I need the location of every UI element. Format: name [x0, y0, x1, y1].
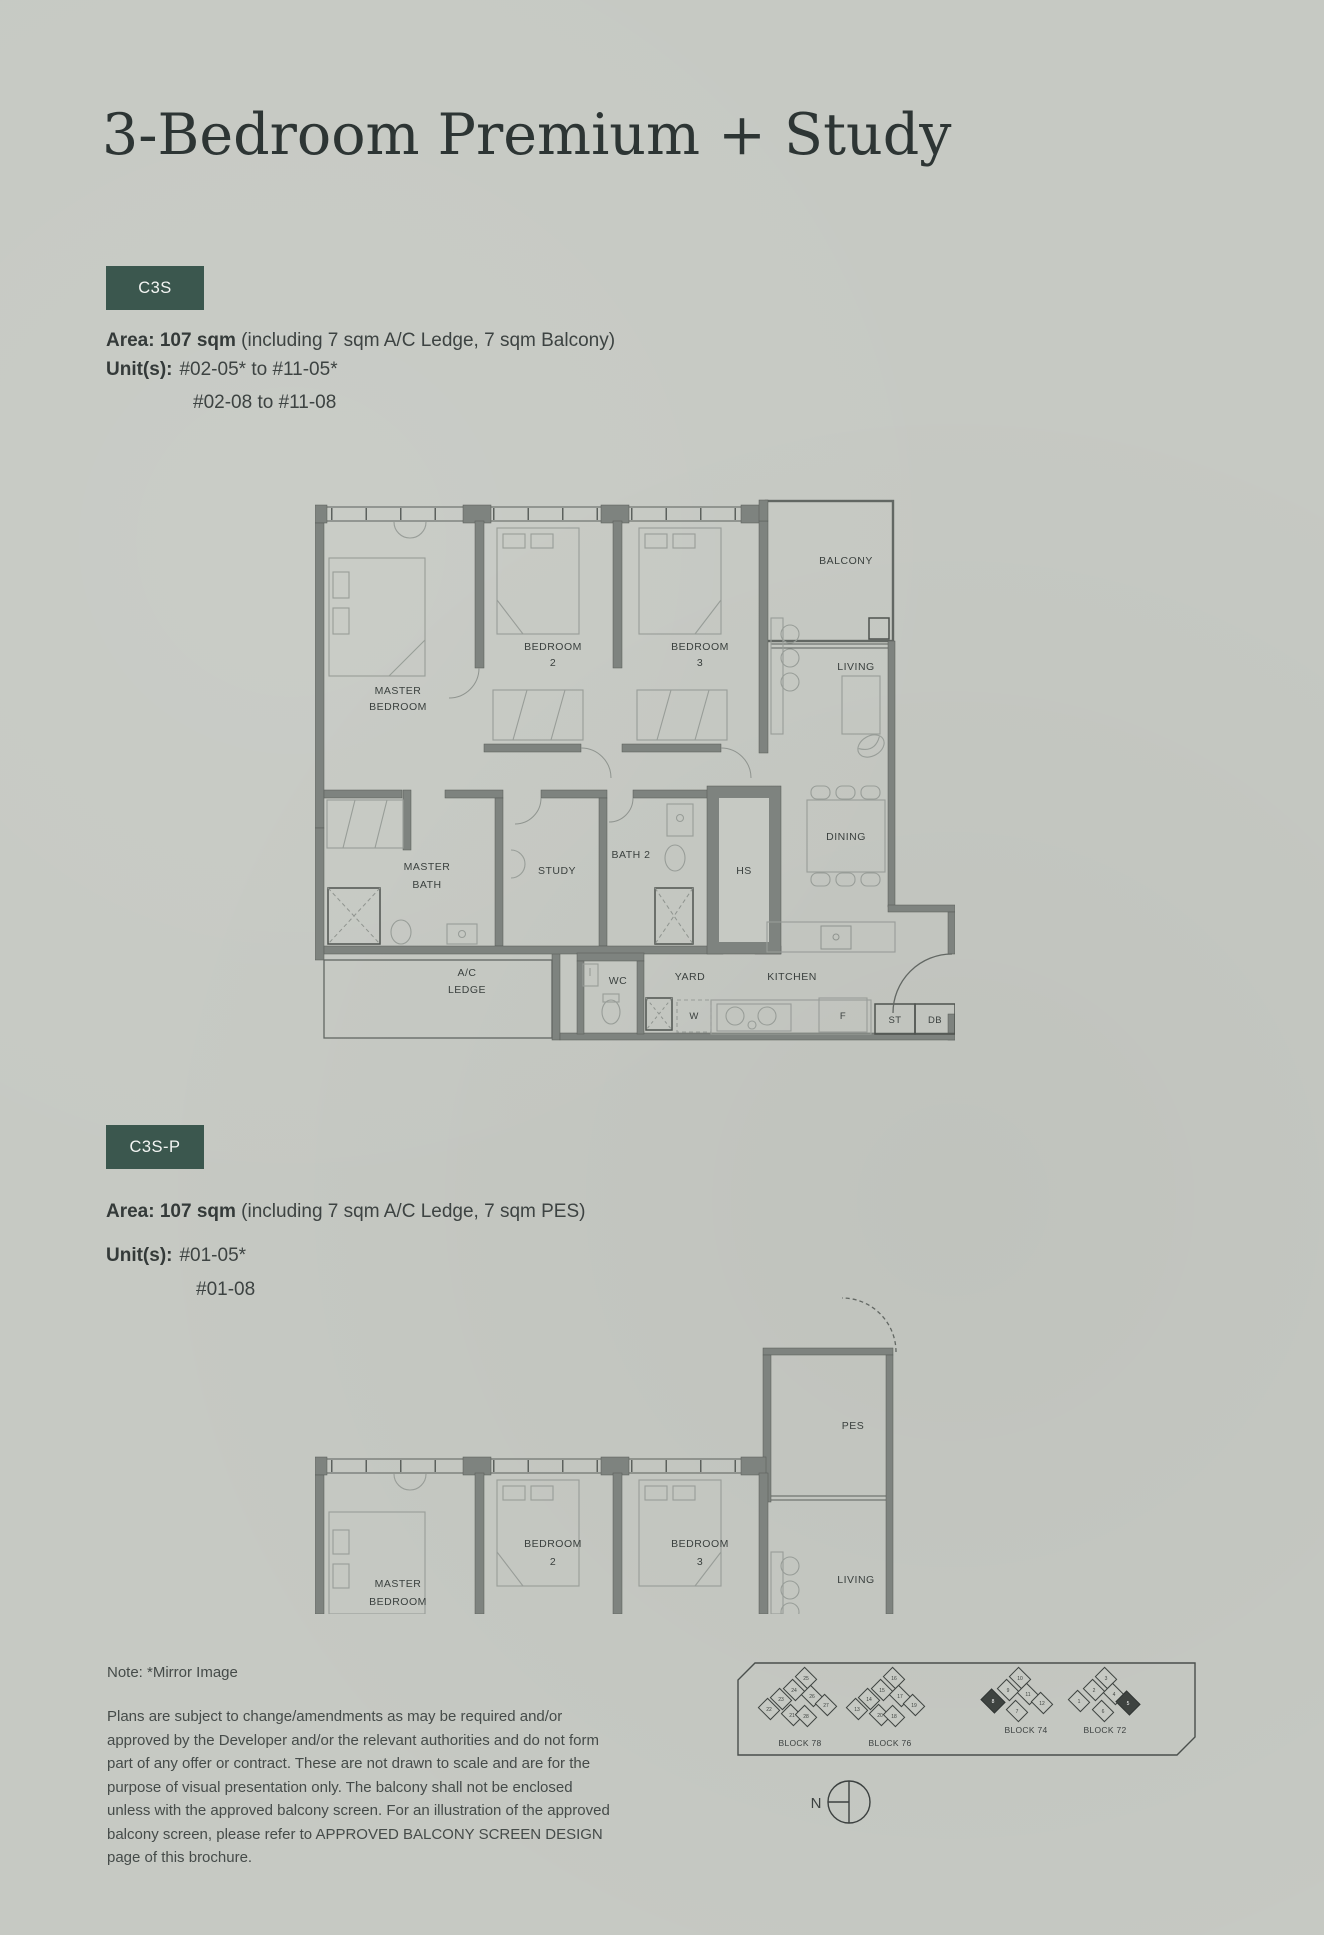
- site-block-76: 16 15 14 13 20 17 19 18: [846, 1667, 924, 1726]
- room-label-master-bedroom: MASTER: [375, 685, 422, 697]
- site-unit-number: 27: [823, 1703, 829, 1709]
- area-detail: (including 7 sqm A/C Ledge, 7 sqm Balcon…: [236, 330, 615, 351]
- site-unit-number: 14: [866, 1697, 872, 1703]
- site-block-72: 3 2 1 6 4 5: [1068, 1667, 1140, 1721]
- door-arc: [515, 798, 541, 824]
- vanity: [667, 804, 693, 836]
- site-unit-number: 22: [766, 1707, 772, 1713]
- site-unit-number: 18: [891, 1714, 897, 1720]
- site-unit-number: 5: [1127, 1701, 1130, 1707]
- units-range-1: #02-05* to #11-05*: [179, 359, 337, 380]
- site-unit-number: 16: [891, 1676, 897, 1682]
- site-unit-number: 3: [1105, 1676, 1108, 1682]
- svg-text:LEDGE: LEDGE: [448, 984, 486, 996]
- site-unit-number: 12: [1039, 1701, 1045, 1707]
- room-label-yard: YARD: [675, 971, 705, 983]
- chair: [811, 786, 830, 799]
- site-unit-number: 25: [803, 1676, 809, 1682]
- wardrobe: [327, 800, 403, 848]
- site-unit-number: 10: [1017, 1676, 1023, 1682]
- kitchen-sink: [821, 926, 851, 949]
- site-unit-number: 21: [789, 1713, 795, 1719]
- site-unit-number: 7: [1016, 1709, 1019, 1715]
- wall: [315, 523, 324, 828]
- site-unit-number: 17: [897, 1694, 903, 1700]
- units-label: Unit(s):: [106, 359, 172, 380]
- room-label-pes: PES: [842, 1420, 865, 1432]
- site-unit-number: 9: [1007, 1688, 1010, 1694]
- bath-sink: [391, 920, 411, 944]
- brochure-page: 3-Bedroom Premium + Study C3S Area: 107 …: [0, 0, 1324, 1935]
- units-label: Unit(s):: [106, 1245, 172, 1266]
- label-st: ST: [889, 1015, 902, 1026]
- site-block-label: BLOCK 72: [1083, 1725, 1126, 1735]
- page-title: 3-Bedroom Premium + Study: [102, 102, 951, 168]
- site-unit-number: 2: [1093, 1688, 1096, 1694]
- site-unit-number: 19: [911, 1703, 917, 1709]
- area-detail: (including 7 sqm A/C Ledge, 7 sqm PES): [236, 1201, 586, 1222]
- svg-text:3: 3: [697, 657, 703, 669]
- bed: [639, 528, 721, 634]
- site-plan: 25 24 23 22 21 26 27 28 BLOCK 78 16 15 1…: [720, 1655, 1210, 1835]
- units-line-c3s-p: Unit(s):#01-05*: [106, 1245, 246, 1267]
- ac-ledge-outline: [324, 960, 552, 1038]
- svg-text:2: 2: [550, 1556, 556, 1568]
- room-label-master-bedroom: MASTER: [375, 1578, 422, 1590]
- units-range-2: #01-08: [196, 1279, 255, 1300]
- units-range-1: #01-05*: [179, 1245, 246, 1266]
- label-db: DB: [928, 1015, 942, 1026]
- area-value: Area: 107 sqm: [106, 330, 236, 351]
- site-unit-number: 13: [854, 1707, 860, 1713]
- site-unit-number: 11: [1025, 1692, 1030, 1698]
- room-label-master-bath: MASTER: [404, 861, 451, 873]
- site-unit-number: 23: [778, 1697, 784, 1703]
- svg-text:BATH: BATH: [412, 879, 441, 891]
- site-unit-number: 1: [1078, 1699, 1081, 1705]
- site-unit-number: 4: [1113, 1692, 1116, 1698]
- toilet: [602, 1000, 620, 1024]
- room-label-bedroom2: BEDROOM: [524, 1538, 582, 1550]
- appliance-label-fridge: F: [840, 1011, 846, 1022]
- door-arc: [581, 748, 611, 778]
- room-label-study: STUDY: [538, 865, 576, 877]
- site-block-78: 25 24 23 22 21 26 27 28: [758, 1667, 836, 1726]
- curtain-arc: [394, 522, 426, 538]
- svg-text:BEDROOM: BEDROOM: [369, 1596, 427, 1608]
- site-block-label: BLOCK 78: [778, 1738, 821, 1748]
- study-desk: [511, 850, 525, 878]
- bed: [639, 1480, 721, 1586]
- svg-text:BEDROOM: BEDROOM: [369, 701, 427, 713]
- sofa: [771, 1552, 783, 1614]
- room-label-hs: HS: [736, 865, 752, 877]
- area-line-c3s-p: Area: 107 sqm (including 7 sqm A/C Ledge…: [106, 1201, 585, 1223]
- svg-text:3: 3: [697, 1556, 703, 1568]
- floor-plan-c3s: BALCONY MASTER BEDROOM: [315, 498, 955, 1050]
- site-unit-number: 15: [879, 1688, 885, 1694]
- units-range-2: #02-08 to #11-08: [193, 392, 336, 413]
- site-block-label: BLOCK 76: [868, 1738, 911, 1748]
- site-block-label: BLOCK 74: [1004, 1725, 1047, 1735]
- site-unit-number: 20: [877, 1713, 883, 1719]
- appliance-label-washer: W: [689, 1011, 698, 1022]
- area-value: Area: 107 sqm: [106, 1201, 236, 1222]
- unit-type-badge-c3s: C3S: [106, 266, 204, 310]
- unit-type-badge-c3s-p: C3S-P: [106, 1125, 204, 1169]
- site-unit-number: 28: [803, 1714, 809, 1720]
- site-unit-number: 26: [809, 1694, 815, 1700]
- north-compass: N: [811, 1781, 870, 1823]
- site-block-74: 10 9 8 7 11 12: [981, 1667, 1053, 1721]
- toilet: [665, 845, 685, 871]
- plant: [854, 730, 888, 761]
- vanity: [447, 924, 477, 944]
- disclaimer-text: Plans are subject to change/amendments a…: [107, 1705, 613, 1870]
- room-label-bath2: BATH 2: [612, 849, 651, 861]
- unit-type-code: C3S: [138, 279, 172, 298]
- north-label: N: [811, 1795, 822, 1812]
- room-label-living: LIVING: [837, 661, 874, 673]
- units-line2-c3s: #02-08 to #11-08: [193, 392, 336, 414]
- site-unit-number: 24: [791, 1688, 797, 1694]
- room-label-kitchen: KITCHEN: [767, 971, 817, 983]
- svg-text:2: 2: [550, 657, 556, 669]
- unit-type-code: C3S-P: [129, 1138, 180, 1157]
- room-label-bedroom3: BEDROOM: [671, 1538, 729, 1550]
- wardrobe: [493, 690, 583, 740]
- room-label-ac-ledge: A/C: [457, 967, 476, 979]
- pes-gate-arc: [842, 1298, 896, 1352]
- units-line-c3s: Unit(s):#02-05* to #11-05*: [106, 359, 338, 381]
- wardrobe: [637, 690, 727, 740]
- stove: [717, 1004, 791, 1031]
- mirror-note: Note: *Mirror Image: [107, 1664, 238, 1681]
- site-unit-number: 6: [1102, 1709, 1105, 1715]
- bed: [497, 1480, 579, 1586]
- floor-plan-c3s-p: PES MASTER BEDROOM BEDROOM 2: [315, 1290, 955, 1614]
- room-label-dining: DINING: [826, 831, 866, 843]
- units-line2-c3s-p: #01-08: [196, 1279, 255, 1301]
- bed: [497, 528, 579, 634]
- tv-console: [842, 676, 880, 734]
- room-label-wc: WC: [609, 975, 628, 987]
- room-label-bedroom2: BEDROOM: [524, 641, 582, 653]
- site-unit-number: 8: [992, 1699, 995, 1705]
- balcony-outline: [766, 501, 893, 641]
- room-label-bedroom3: BEDROOM: [671, 641, 729, 653]
- room-label-balcony: BALCONY: [819, 555, 873, 567]
- area-line-c3s: Area: 107 sqm (including 7 sqm A/C Ledge…: [106, 330, 615, 352]
- balcony-ac-box: [869, 618, 889, 639]
- master-bed: [329, 558, 425, 676]
- room-label-living: LIVING: [837, 1574, 874, 1586]
